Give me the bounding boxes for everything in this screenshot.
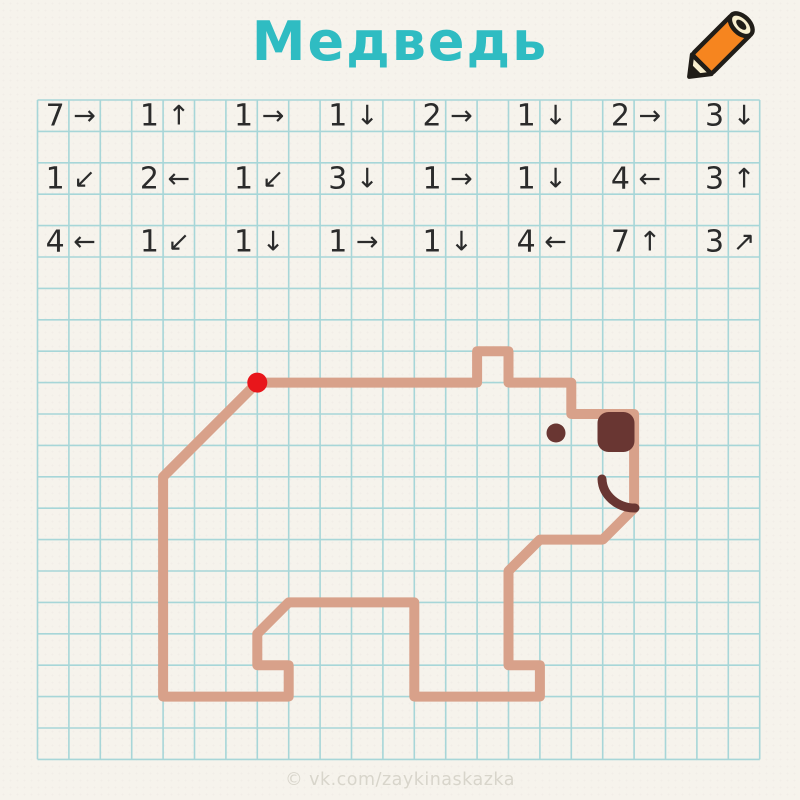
instruction-count: 1	[517, 99, 536, 134]
worksheet-page: Медведь 7→1↑1→1↓2→1↓2→3↓1↙2←1↙3↓1→1↓4←3↑…	[0, 0, 800, 800]
instruction-count: 3	[705, 224, 724, 259]
up-arrow-icon: ↑	[167, 101, 190, 132]
down-arrow-icon: ↓	[450, 226, 473, 257]
bear-eye	[547, 424, 566, 443]
down-left-arrow-icon: ↙	[262, 164, 285, 195]
left-arrow-icon: ←	[73, 226, 96, 257]
down-arrow-icon: ↓	[356, 101, 379, 132]
instruction-count: 3	[705, 162, 724, 197]
instruction-rows: 7→1↑1→1↓2→1↓2→3↓1↙2←1↙3↓1→1↓4←3↑4←1↙1↓1→…	[46, 99, 756, 260]
instruction-count: 4	[517, 224, 536, 259]
down-left-arrow-icon: ↙	[73, 164, 96, 195]
instruction-count: 4	[611, 162, 630, 197]
right-arrow-icon: →	[450, 101, 473, 132]
instruction-count: 1	[46, 162, 65, 197]
right-arrow-icon: →	[262, 101, 285, 132]
puzzle-canvas: 7→1↑1→1↓2→1↓2→3↓1↙2←1↙3↓1→1↓4←3↑4←1↙1↓1→…	[0, 0, 800, 800]
down-arrow-icon: ↓	[544, 164, 567, 195]
watermark: © vk.com/zaykinaskazka	[0, 770, 800, 790]
instruction-count: 1	[234, 224, 253, 259]
left-arrow-icon: ←	[544, 226, 567, 257]
down-arrow-icon: ↓	[733, 101, 756, 132]
instruction-count: 3	[328, 162, 347, 197]
instruction-count: 2	[422, 99, 441, 134]
down-arrow-icon: ↓	[262, 226, 285, 257]
bear-outline	[163, 351, 634, 696]
instruction-count: 1	[234, 162, 253, 197]
instruction-count: 2	[140, 162, 159, 197]
up-right-arrow-icon: ↗	[733, 226, 756, 257]
right-arrow-icon: →	[638, 101, 661, 132]
instruction-count: 1	[234, 99, 253, 134]
instruction-count: 1	[422, 162, 441, 197]
instruction-count: 1	[517, 162, 536, 197]
left-arrow-icon: ←	[638, 164, 661, 195]
up-arrow-icon: ↑	[638, 226, 661, 257]
left-arrow-icon: ←	[167, 164, 190, 195]
instruction-count: 1	[140, 99, 159, 134]
instruction-count: 3	[705, 99, 724, 134]
grid-lines	[38, 100, 760, 759]
instruction-count: 1	[422, 224, 441, 259]
instruction-count: 2	[611, 99, 630, 134]
start-dot	[247, 373, 267, 393]
instruction-count: 1	[140, 224, 159, 259]
bear-nose	[598, 412, 635, 452]
right-arrow-icon: →	[73, 101, 96, 132]
right-arrow-icon: →	[356, 226, 379, 257]
down-arrow-icon: ↓	[544, 101, 567, 132]
right-arrow-icon: →	[450, 164, 473, 195]
down-left-arrow-icon: ↙	[167, 226, 190, 257]
instruction-count: 7	[46, 99, 65, 134]
up-arrow-icon: ↑	[733, 164, 756, 195]
instruction-count: 7	[611, 224, 630, 259]
instruction-count: 4	[46, 224, 65, 259]
down-arrow-icon: ↓	[356, 164, 379, 195]
instruction-count: 1	[328, 224, 347, 259]
instruction-count: 1	[328, 99, 347, 134]
